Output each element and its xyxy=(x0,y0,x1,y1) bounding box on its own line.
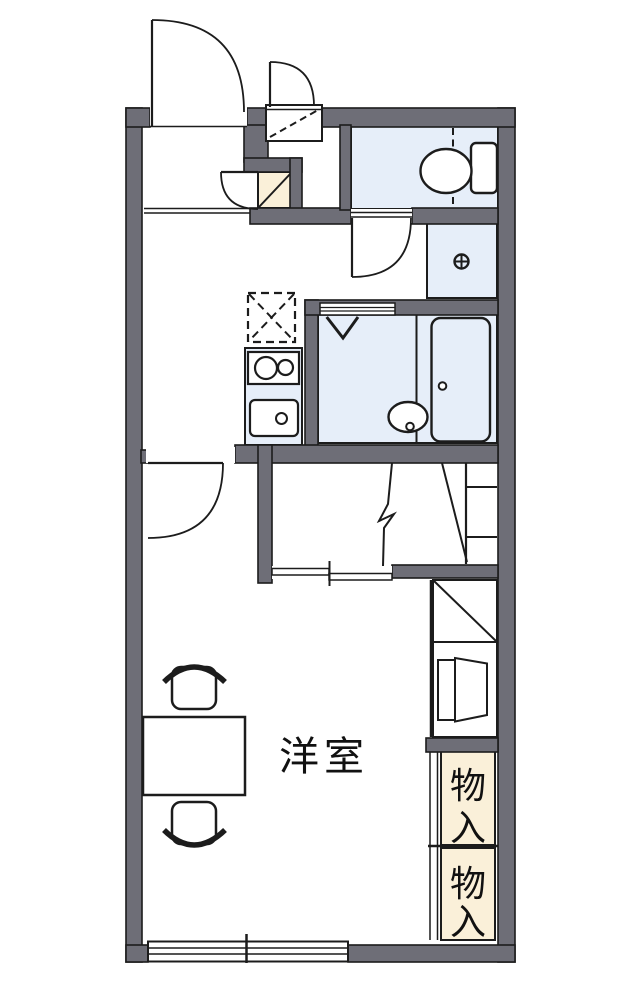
wall-midroom-left xyxy=(258,445,272,583)
water-heater-icon xyxy=(438,660,455,720)
kitchen-sink xyxy=(250,400,298,436)
bath-window xyxy=(320,303,395,315)
wall-middle-band xyxy=(235,445,498,463)
window-frame xyxy=(148,942,348,962)
wall-storage-band xyxy=(426,738,498,752)
wall-hall xyxy=(412,208,498,224)
wall-genkan xyxy=(290,158,302,211)
wall-toilet-left xyxy=(340,125,351,210)
door-opening xyxy=(146,447,235,463)
wall-midroom-bottom xyxy=(392,565,498,578)
sliding-panel xyxy=(272,569,329,576)
wall-genkan xyxy=(244,125,268,162)
wall-top xyxy=(126,108,150,127)
wall-top xyxy=(322,108,515,127)
toilet-tank xyxy=(471,143,497,193)
bathtub xyxy=(432,318,491,442)
basin-drain xyxy=(406,423,414,431)
window-frame xyxy=(320,303,395,315)
washing-machine-pan-mark xyxy=(454,254,469,269)
page-background xyxy=(0,0,640,983)
closet-lower-label-char2: 入 xyxy=(450,902,486,943)
closet-upper-label-char2: 入 xyxy=(450,808,486,849)
wall-bath-left xyxy=(305,300,318,455)
wall-left xyxy=(126,108,142,962)
door-opening xyxy=(351,209,412,223)
closet-upper-label-char1: 物 xyxy=(450,766,486,807)
table xyxy=(143,717,245,795)
wall-right xyxy=(498,108,515,962)
wall-bottom xyxy=(348,945,515,962)
entrance-opening xyxy=(150,106,247,126)
main-room-label: 洋室 xyxy=(279,734,369,780)
closet-lower-label-char1: 物 xyxy=(450,864,486,905)
water-heater-door-icon xyxy=(455,658,487,722)
wall-hall xyxy=(250,208,351,224)
floor-plan-drawing: 洋室 物 入 物 入 xyxy=(0,0,640,983)
shoe-cabinet xyxy=(258,172,292,208)
wall-top xyxy=(247,108,266,127)
storage-column xyxy=(431,580,497,737)
floor-plan: 洋室 物 入 物 入 xyxy=(0,0,640,983)
chair-bottom-seat xyxy=(172,802,216,844)
toilet-bowl xyxy=(421,149,472,193)
sliding-panel xyxy=(329,574,392,581)
bathtub-drain xyxy=(439,382,447,390)
wall-bottom xyxy=(126,945,148,962)
